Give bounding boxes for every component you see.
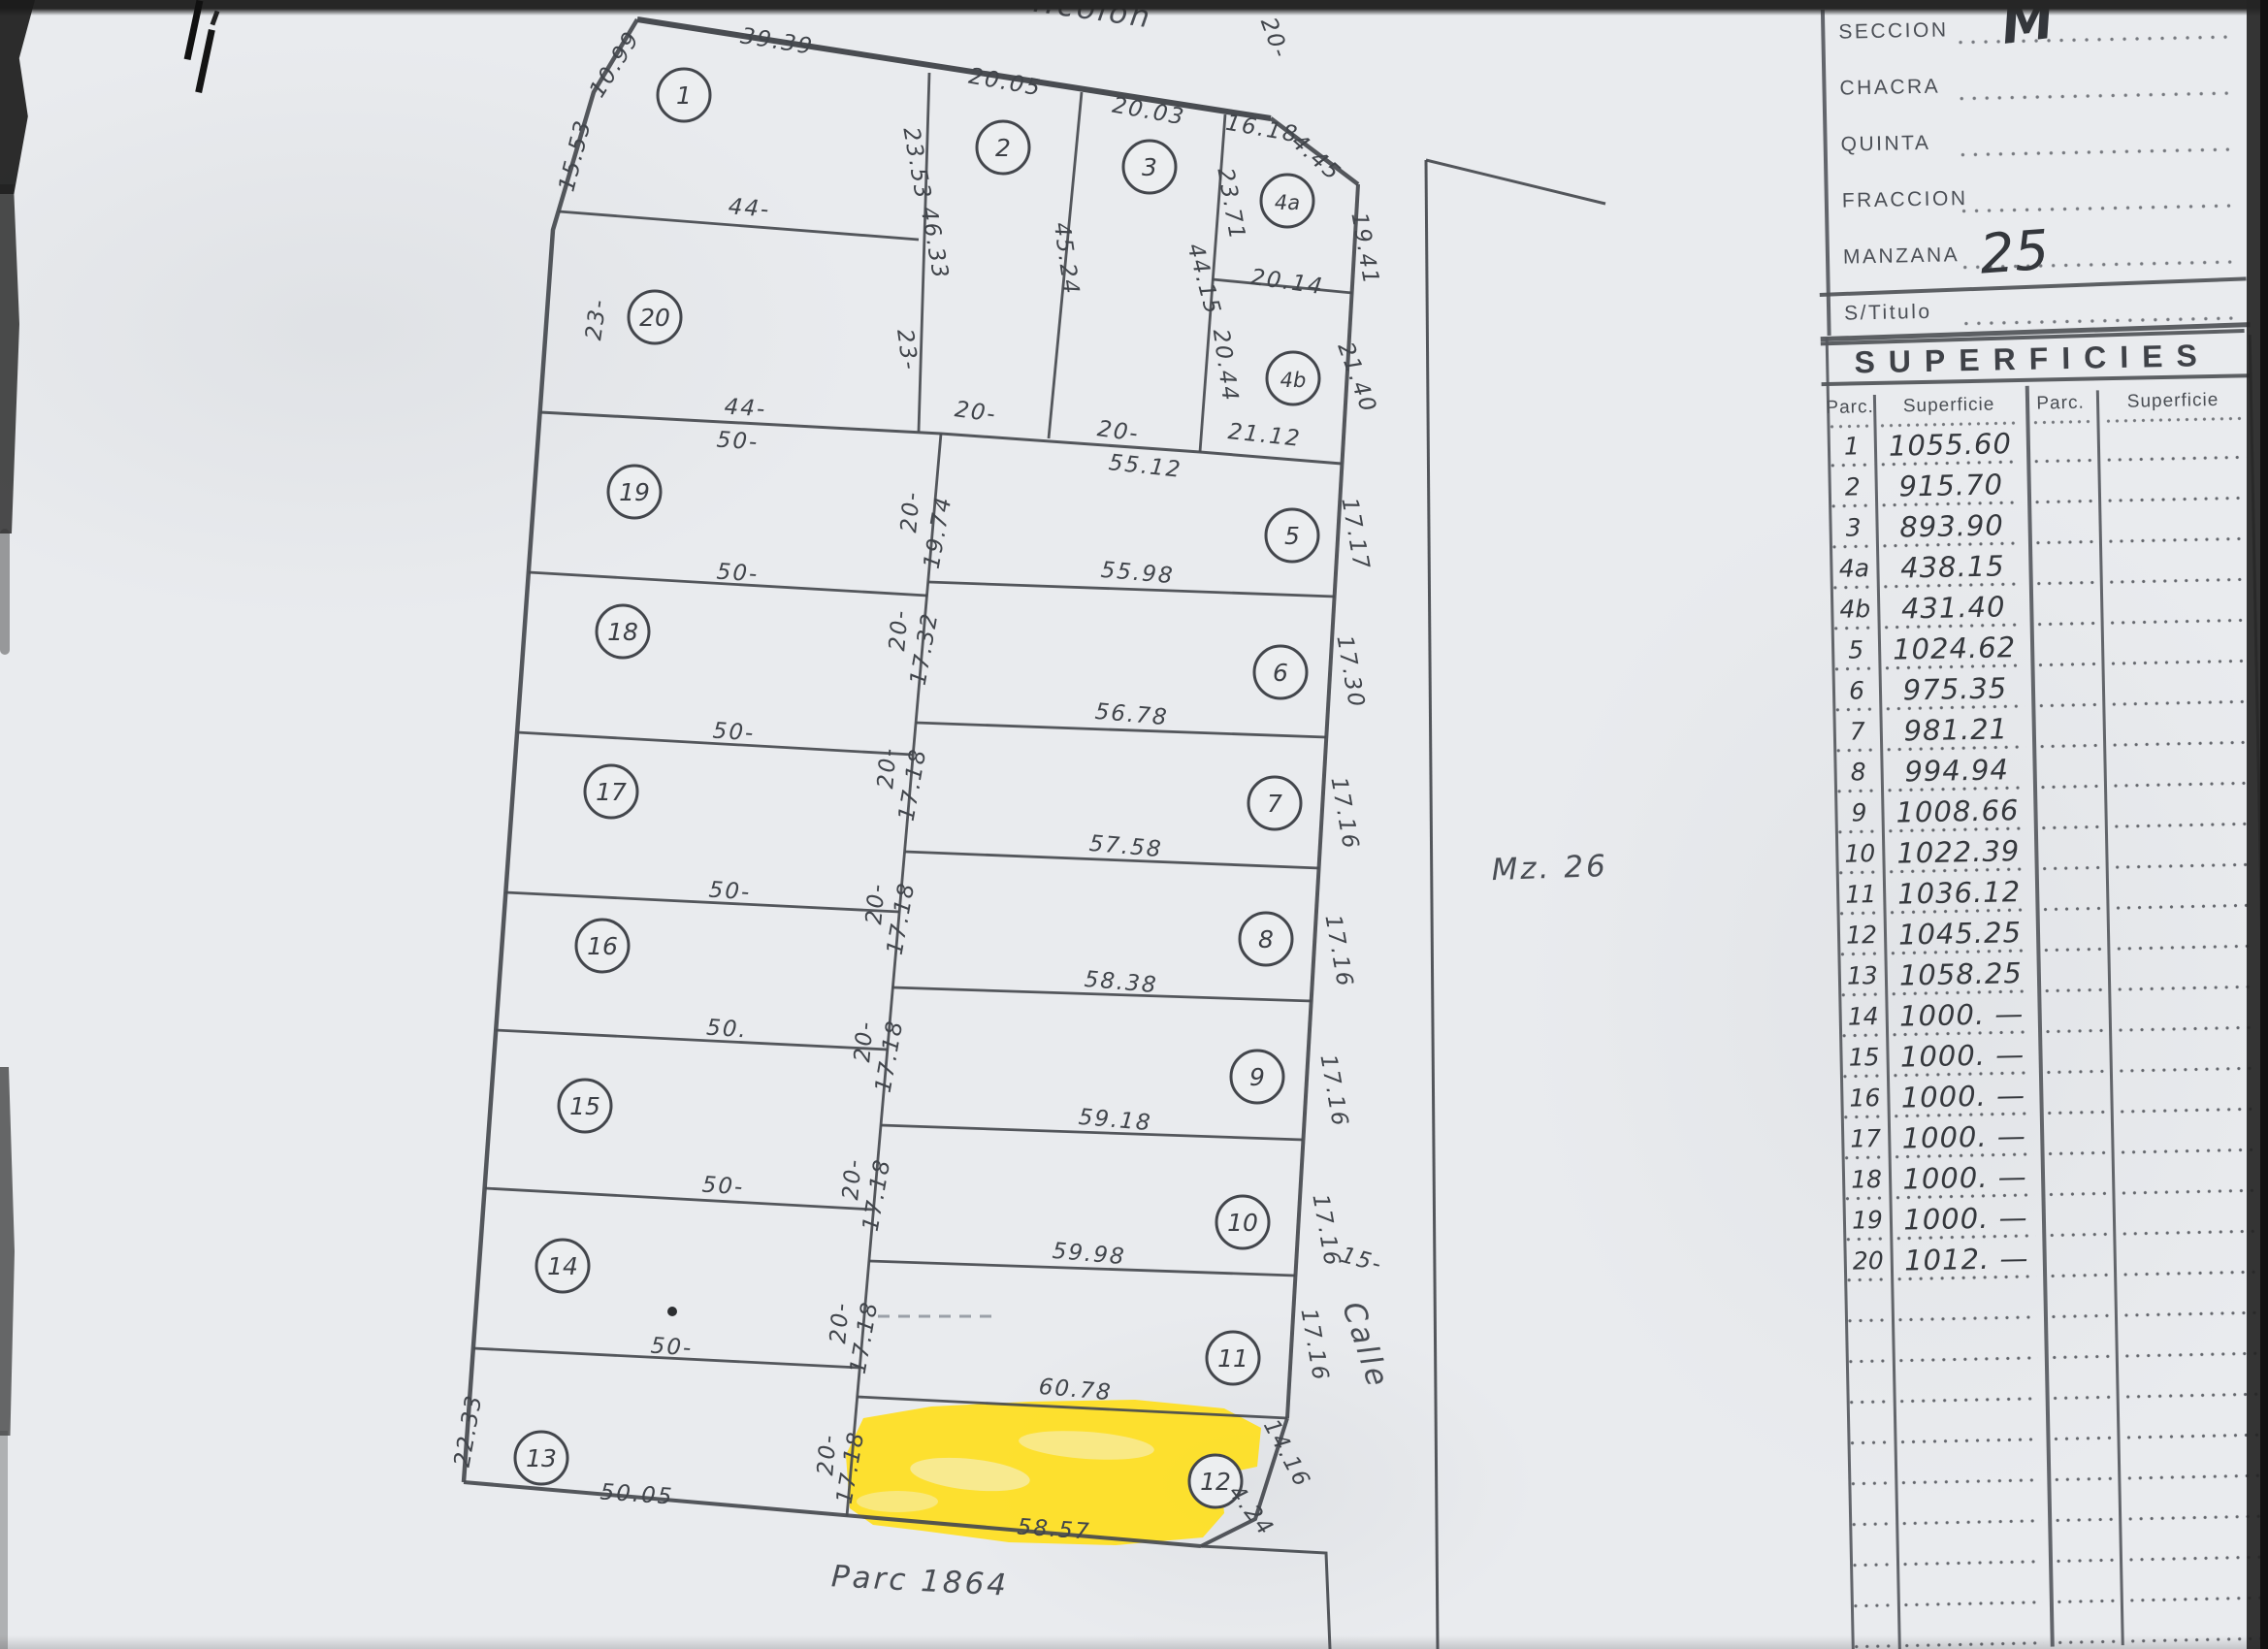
parcel-number: 6 [1273,659,1288,687]
form-field-row: QUINTA [1814,125,2253,173]
measurement-label: 16.18 [1224,111,1301,148]
superficie-cell [1901,1445,2041,1485]
form-area: SECCIONMCHACRAQUINTAFRACCIONMANZANA25S/T… [1812,0,2257,336]
parcel-id-cell: 10 [1838,837,1882,875]
table-row: 11055.60 [1821,422,2260,469]
measurement-label: 17.16 [1296,1307,1334,1383]
measurement-label: 20.44 [1208,328,1243,404]
measurement-label: 45.24 [1049,221,1084,298]
table-row: 2915.70 [1821,463,2260,510]
table-column-header: Superficie [1903,395,1995,418]
measurement-label: 17.16 [1308,1192,1345,1269]
table-row: 3893.90 [1822,503,2261,551]
parcel-id-cell [2038,629,2099,666]
measurement-label: 57.58 [1088,831,1164,863]
form-field-label: MANZANA [1843,243,1960,269]
table-row: 51024.62 [1825,626,2264,673]
form-field-label: SECCION [1838,18,1949,44]
measurement-label: 15.53 [554,116,597,194]
measurement-label: 20- [1096,416,1142,447]
street-label: Mz. 26 [1491,849,1608,888]
measurement-label: 17.16 [1320,913,1358,989]
measurement-label: 17.30 [1332,633,1370,710]
parcel-id-cell [2047,1077,2108,1115]
superficie-cell [2117,911,2256,951]
superficie-cell [1900,1405,2040,1444]
parcel-id-cell: 5 [1834,633,1878,671]
ink-dot [667,1307,677,1316]
table-row: 161000. — [1833,1074,2268,1121]
measurement-label: 17.16 [1326,775,1364,852]
form-field-row: CHACRA [1813,69,2252,116]
superficies-table: SUPERFICIES Parc.SuperficieParc.Superfic… [1819,327,2268,1649]
table-row: 131058.25 [1831,952,2268,999]
parcel-number: 4a [1275,191,1300,214]
table-row [1842,1522,2268,1569]
parcel-id-cell: 19 [1846,1204,1890,1242]
parcel-id-cell: 4b [1833,593,1877,630]
superficie-cell [2124,1318,2264,1358]
parcel-id-cell [2050,1199,2111,1237]
parcel-id-cell [2036,547,2097,585]
parcel-number: 7 [1267,790,1282,818]
table-row: 91008.66 [1828,789,2267,836]
measurement-label: 44- [724,395,767,423]
superficie-cell [1904,1608,2044,1648]
measurement-label: 20- [826,1301,855,1345]
parcel-number: 4b [1280,369,1307,392]
superficie-cell [1903,1568,2043,1607]
parcel-number: 11 [1217,1344,1248,1373]
parcel-number: 16 [587,932,618,960]
superficie-cell [2112,707,2252,747]
parcel-number: 10 [1227,1209,1258,1237]
table-row: 101022.39 [1829,829,2268,877]
table-row: 7981.21 [1826,707,2265,755]
superficie-cell: 1000. — [1895,1119,2034,1159]
measurement-label: 46.33 [916,205,954,281]
parcel-id-cell [1848,1326,1892,1364]
superficie-cell [2108,503,2248,543]
parcel-id-cell [2048,1117,2109,1155]
parcel-id-cell [2037,588,2098,626]
street-label: ..colon [1031,0,1155,36]
parcel-id-cell: 11 [1839,878,1883,916]
table-row [1842,1481,2268,1529]
parcel-id-cell [1854,1611,1897,1649]
parcel-id-cell: 8 [1836,756,1880,793]
parcel-id-cell [2051,1280,2112,1318]
measurement-label: 22.33 [450,1392,488,1469]
measurement-label: 17.16 [1315,1052,1353,1129]
table-row [1838,1318,2268,1366]
parcel-number: 3 [1142,153,1157,181]
parcel-id-cell: 1 [1831,430,1874,468]
superficie-cell: 1000. — [1894,1079,2033,1118]
parcel-number: 14 [547,1252,578,1280]
parcel-id-cell [2041,792,2102,829]
table-row [1844,1603,2268,1649]
superficie-cell [2110,585,2250,625]
superficie-cell [2113,748,2252,788]
parcel-id-cell [2053,1362,2114,1400]
measurement-label: 17.17 [1337,496,1375,572]
table-row: 4b431.40 [1824,585,2263,632]
table-row: 141000. — [1831,992,2268,1040]
superficie-cell [2126,1400,2266,1439]
superficie-cell: 1000. — [1895,1160,2035,1200]
superficie-cell [2122,1155,2261,1195]
parcel-number: 2 [995,134,1011,162]
measurement-label: 20.14 [1249,265,1326,300]
superficie-cell [2130,1603,2268,1643]
parcel-number: 12 [1200,1468,1231,1496]
table-row [1839,1359,2268,1406]
measurement-label: 39.39 [739,23,816,60]
superficie-cell: 1058.25 [1892,956,2031,996]
measurement-label: 60.78 [1038,1374,1114,1406]
table-row: 111036.12 [1830,870,2268,918]
parcel-number: 1 [676,81,692,110]
table-row [1843,1563,2268,1610]
table-row: 201012. — [1836,1237,2268,1284]
table-column-header: Parc. [2036,393,2085,415]
superficie-cell [2109,544,2249,584]
parcel-number: 5 [1284,522,1300,550]
superficie-cell [1902,1527,2042,1567]
parcel-id-cell [2043,873,2104,911]
superficie-cell [2128,1522,2268,1562]
parcel-id-cell [1850,1407,1894,1445]
measurement-label: 20- [838,1157,867,1202]
superficie-cell [2127,1481,2267,1521]
parcel-id-cell [2045,954,2106,992]
parcel-id-cell [1852,1489,1895,1527]
dotted-leader [1959,35,2232,46]
parcel-number: 8 [1258,925,1274,954]
measurement-label: 50.05 [599,1479,674,1509]
parcel-id-cell: 2 [1831,470,1874,508]
measurement-label: 59.98 [1052,1239,1127,1271]
table-row: 6975.35 [1826,666,2265,714]
superficie-cell [2125,1359,2265,1399]
measurement-label: 58.57 [1017,1514,1091,1544]
parcel-id-cell [2040,751,2101,789]
measurement-label: 20- [1255,15,1293,63]
superficie-cell [2118,992,2257,1032]
parcel-id-cell [1852,1530,1895,1568]
superficie-cell: 1024.62 [1885,630,2025,670]
measurement-label: 50. [705,1016,748,1044]
parcel-id-cell: 14 [1841,1000,1885,1038]
parcel-id-cell: 7 [1835,715,1879,753]
superficie-cell [2112,666,2252,706]
parcel-id-cell [2055,1484,2116,1522]
parcel-id-cell [2035,506,2096,544]
handwritten-value: 25 [1978,219,2052,287]
measurement-label: 20.03 [1111,93,1187,131]
title-block-panel: SECCIONMCHACRAQUINTAFRACCIONMANZANA25S/T… [1812,0,2268,1647]
parcel-id-cell [2034,425,2095,463]
table-row: 121045.25 [1831,911,2268,958]
superficie-cell [1899,1364,2039,1404]
superficie-cell [2127,1440,2267,1480]
parcel-id-cell [1851,1448,1895,1486]
superficie-cell: 893.90 [1882,508,2022,548]
superficie-cell [1901,1486,2041,1526]
superficie-cell [2114,789,2253,828]
superficie-cell [2122,1196,2262,1236]
superficie-cell [2121,1115,2260,1154]
table-column-header: Parc. [1826,397,1874,419]
measurement-label: 23- [581,297,612,342]
parcel-number: 19 [619,478,650,506]
table-row: 8994.94 [1827,748,2266,795]
parcel-number: 20 [639,304,670,332]
parcel-id-cell [2042,832,2103,870]
dotted-leader [1960,147,2234,158]
table-row: 181000. — [1835,1155,2268,1203]
measurement-label: 50- [716,560,760,588]
parcel-id-cell: 12 [1840,919,1884,956]
header-underline [1830,424,1868,429]
dotted-leader [1960,91,2233,102]
parcel-id-cell [2056,1525,2117,1563]
parcel-id-cell [1849,1367,1893,1405]
parcel-id-cell: 18 [1845,1163,1889,1201]
superficie-cell: 915.70 [1881,468,2021,507]
parcel-id-cell [2050,1240,2111,1277]
street-label: Calle [1335,1298,1396,1394]
parcel-id-cell [2045,995,2106,1033]
table-row: 171000. — [1834,1115,2268,1162]
superficie-cell [2119,1033,2258,1073]
table-row: 191000. — [1836,1196,2268,1244]
measurement-label: 20- [873,746,902,791]
measurement-label: 20- [850,1019,879,1064]
superficie-cell [1897,1282,2037,1322]
superficie-cell: 1008.66 [1888,793,2027,833]
parcel-number: 17 [596,778,627,806]
parcel-id-cell [2054,1403,2115,1440]
superficie-cell [2122,1237,2262,1277]
dotted-leader [1961,203,2235,213]
superficie-cell [2129,1563,2268,1602]
superficie-cell [2111,626,2251,665]
measurement-label: 50- [716,428,760,456]
table-row: 151000. — [1832,1033,2268,1081]
superficie-cell: 975.35 [1886,671,2025,711]
measurement-label: 20.05 [967,64,1044,102]
measurement-label: 19.74 [920,494,957,570]
measurement-label: 50- [712,719,756,747]
parcel-id-cell: 16 [1843,1082,1887,1119]
parcel-id-cell [2055,1443,2116,1481]
superficie-cell: 994.94 [1887,753,2026,792]
superficie-cell: 1055.60 [1881,427,2021,467]
superficie-cell: 1000. — [1892,997,2031,1037]
measurement-label: 23- [891,328,923,373]
form-field-label: QUINTA [1840,132,1930,157]
superficie-cell [2120,1074,2259,1114]
form-field-label: FRACCION [1842,187,1968,213]
parcel-id-cell: 4a [1832,552,1876,590]
measurement-label: 20- [954,397,999,428]
superficie-cell: 1000. — [1896,1201,2036,1241]
superficie-cell: 1012. — [1896,1242,2036,1281]
measurement-label: 50- [650,1334,694,1362]
superficie-cell [2107,463,2247,502]
header-underline [2033,419,2093,424]
superficie-cell [2115,829,2254,869]
form-field-label: S/Titulo [1844,301,1932,326]
parcel-id-cell: 15 [1842,1041,1886,1079]
measurement-label: 10.99 [585,26,645,102]
parcel-number: 9 [1249,1063,1265,1091]
superficie-cell: 1036.12 [1890,875,2029,915]
table-row: 4a438.15 [1823,544,2262,592]
superficie-cell: 1000. — [1893,1038,2032,1078]
form-field-label: CHACRA [1839,76,1940,101]
table-row [1841,1440,2268,1488]
table-column-header: Superficie [2127,390,2219,413]
superficie-cell: 981.21 [1886,712,2025,752]
parcel-number: 18 [607,618,638,646]
parcel-number: 15 [569,1092,600,1120]
parcel-id-cell: 9 [1837,796,1881,834]
parcel-id-cell [2039,669,2100,707]
superficie-cell [2116,870,2255,910]
scanned-cadastral-sheet: 1234a204b1951861771681591410131112 ..col… [0,0,2268,1649]
measurement-label: 21.40 [1332,339,1380,417]
measurement-label: 20- [861,882,891,926]
parcel-id-cell [2052,1321,2113,1359]
superficie-cell: 431.40 [1884,590,2024,630]
table-row [1837,1277,2268,1325]
measurement-label: 15- [1338,1243,1385,1277]
superficie-cell [2123,1277,2263,1317]
handwritten-value: M [1997,0,2057,56]
measurement-label: 55.98 [1100,558,1176,590]
parcel-id-cell: 6 [1835,674,1879,712]
parcel-id-cell [2044,914,2105,952]
measurement-label: 23.53 [898,125,936,202]
table-row [1840,1400,2268,1447]
measurement-label: 20- [885,608,914,653]
parcel-id-cell [2039,710,2100,748]
parcel-id-cell [1853,1570,1896,1608]
parcel-id-cell: 3 [1831,511,1875,549]
parcel-id-cell [1847,1285,1891,1323]
measurement-label: 20- [896,490,925,534]
parcel-id-cell: 17 [1844,1122,1888,1160]
form-field-row: SECCIONM [1812,13,2252,60]
parcel-id-cell: 20 [1846,1245,1890,1282]
parcel-id-cell [2057,1566,2118,1603]
measurement-label: 21.12 [1227,419,1303,452]
parcel-id-cell [2057,1606,2119,1644]
measurement-label: 44- [728,194,772,223]
street-label: Parc 1864 [830,1559,1010,1603]
parcel-id-cell [2049,1158,2110,1196]
parcel-id-cell [2046,1036,2107,1074]
superficie-cell: 438.15 [1883,549,2023,589]
parcel-id-cell [2034,466,2095,503]
superficie-cell [2117,952,2256,991]
measurement-label: 55.12 [1108,450,1183,483]
parcel-number: 13 [526,1444,557,1472]
measurement-label: 56.78 [1094,699,1170,731]
superficie-cell: 1022.39 [1889,834,2028,874]
measurement-label: 50- [708,878,752,906]
measurement-label: 50- [701,1173,745,1201]
superficie-cell [1898,1323,2038,1363]
superficie-cell [2107,422,2247,462]
superficie-cell: 1045.25 [1891,916,2030,955]
parcel-id-cell: 13 [1841,959,1885,997]
